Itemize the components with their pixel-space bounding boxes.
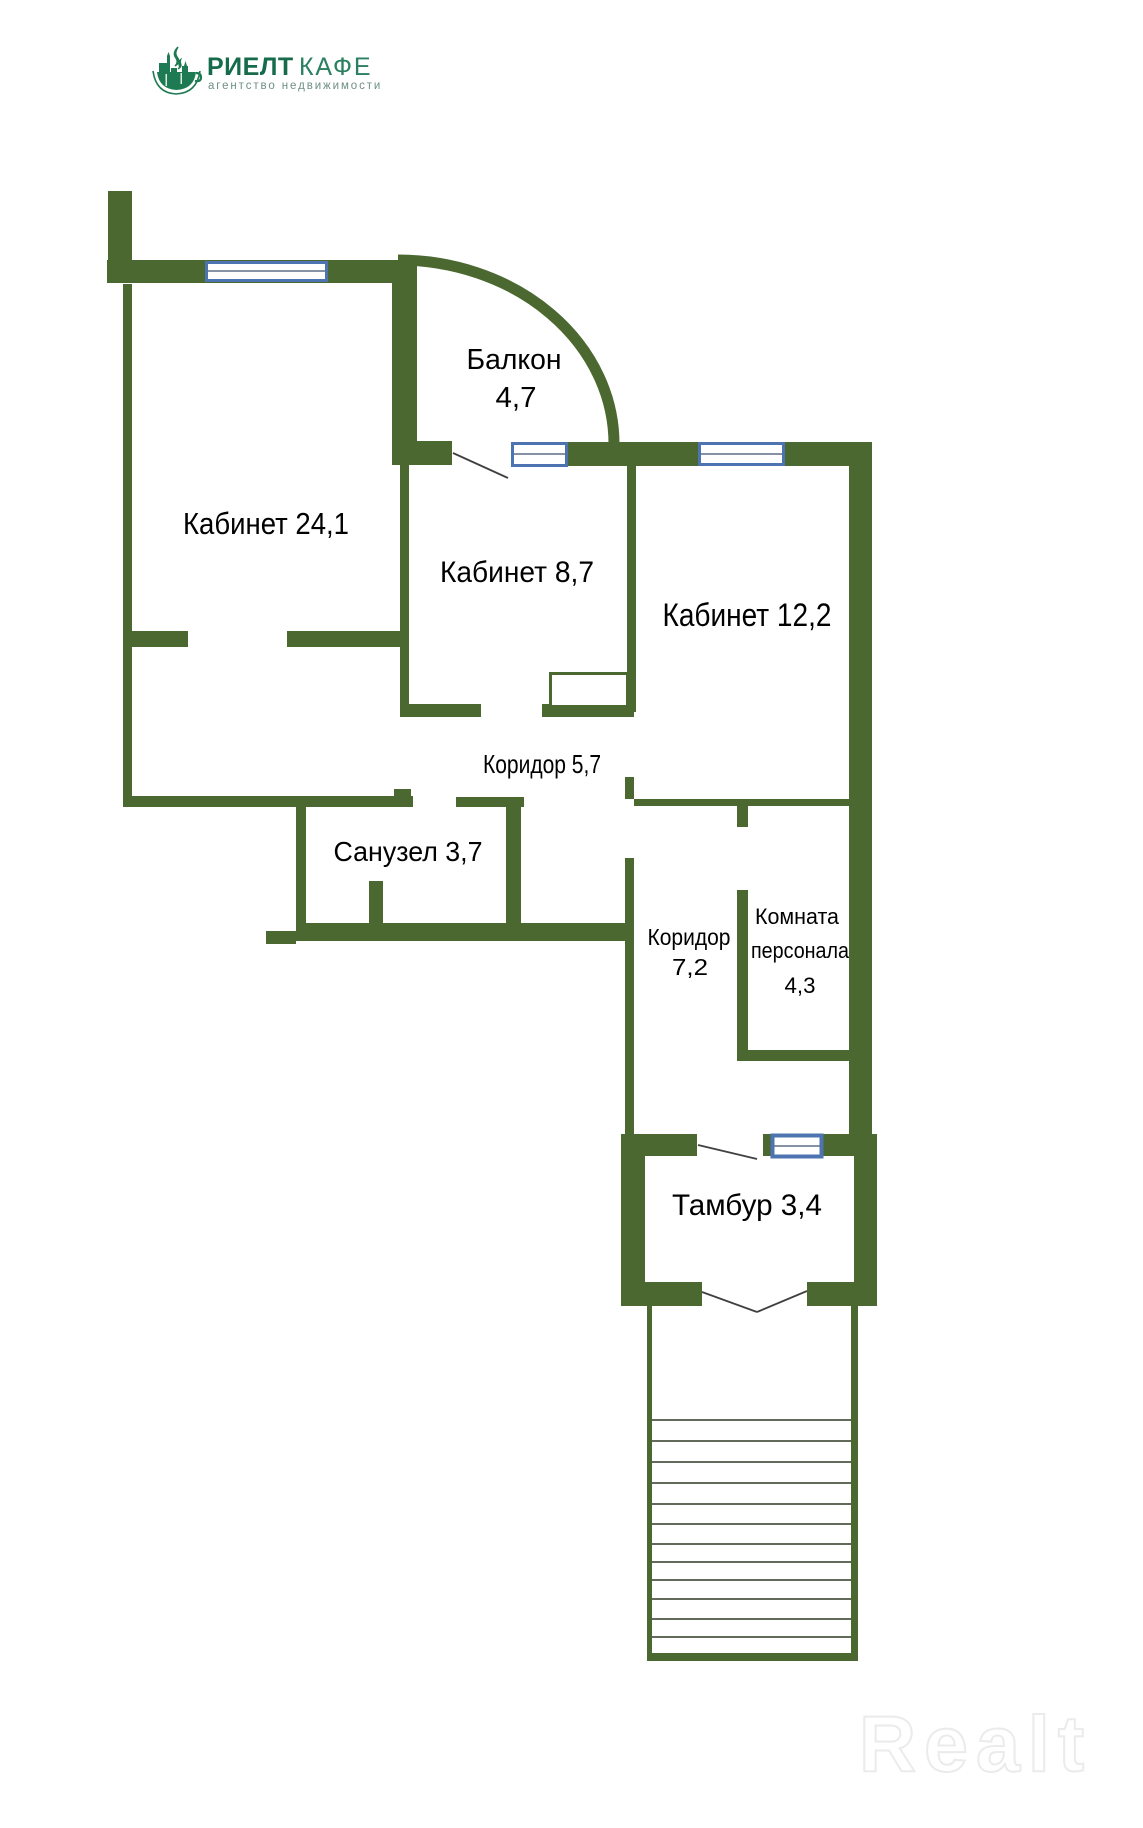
svg-text:Кабинет 12,2: Кабинет 12,2 — [663, 597, 832, 633]
svg-text:4,3: 4,3 — [785, 973, 816, 998]
svg-text:Комната: Комната — [755, 904, 840, 929]
svg-text:Коридор: Коридор — [648, 924, 731, 950]
svg-text:Кабинет 8,7: Кабинет 8,7 — [440, 556, 594, 589]
svg-text:Realt: Realt — [859, 1699, 1092, 1788]
svg-text:7,2: 7,2 — [672, 954, 708, 980]
svg-text:4,7: 4,7 — [496, 382, 537, 414]
svg-text:персонала: персонала — [751, 938, 850, 963]
svg-text:агентство недвижимости: агентство недвижимости — [208, 80, 382, 92]
svg-text:Балкон: Балкон — [467, 344, 562, 376]
svg-text:КАФЕ: КАФЕ — [299, 53, 372, 81]
svg-text:Коридор 5,7: Коридор 5,7 — [483, 749, 601, 779]
svg-text:РИЕЛТ: РИЕЛТ — [207, 53, 294, 81]
svg-text:Санузел 3,7: Санузел 3,7 — [334, 836, 483, 867]
svg-text:Тамбур 3,4: Тамбур 3,4 — [672, 1189, 822, 1222]
svg-text:Кабинет 24,1: Кабинет 24,1 — [183, 506, 349, 541]
